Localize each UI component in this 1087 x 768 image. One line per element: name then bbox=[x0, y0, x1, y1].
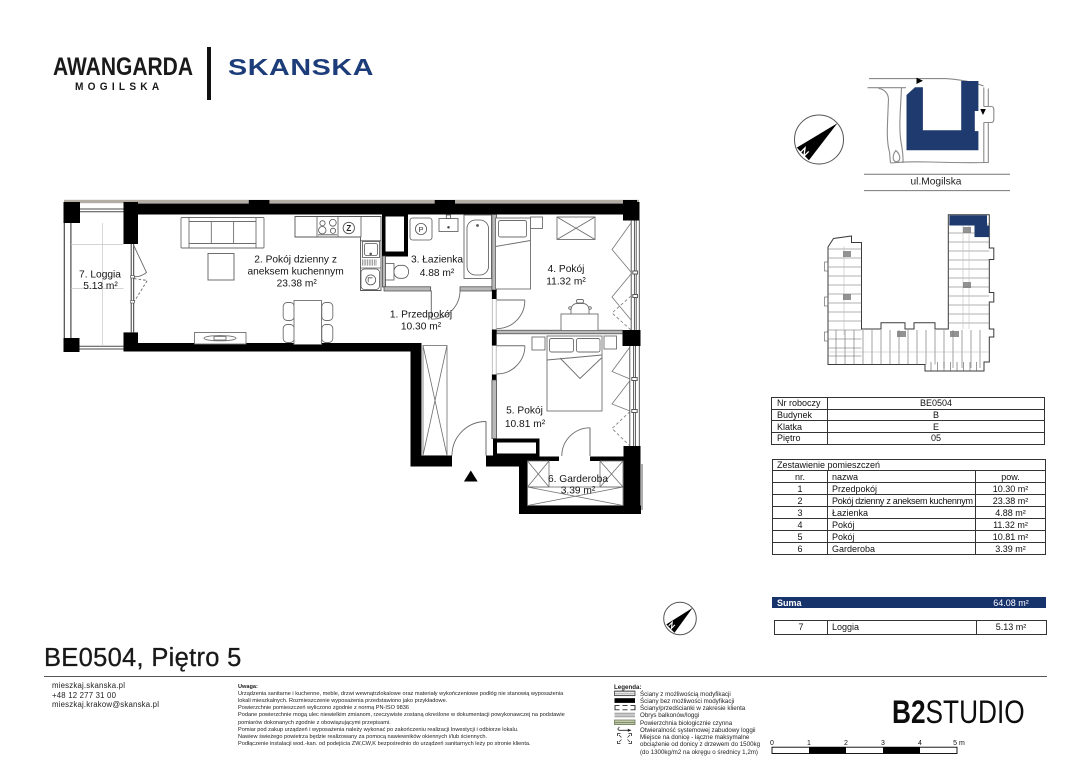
svg-text:10.30 m²: 10.30 m² bbox=[401, 322, 442, 333]
svg-text:1. Przedpokój: 1. Przedpokój bbox=[390, 310, 452, 321]
svg-text:23.38 m²: 23.38 m² bbox=[277, 279, 318, 290]
svg-text:5. Pokój: 5. Pokój bbox=[506, 406, 543, 417]
svg-text:4.88 m²: 4.88 m² bbox=[420, 268, 455, 279]
svg-text:Z: Z bbox=[346, 224, 351, 233]
svg-text:3.39 m²: 3.39 m² bbox=[561, 486, 596, 497]
svg-text:4. Pokój: 4. Pokój bbox=[548, 264, 585, 275]
svg-text:3. Łazienka: 3. Łazienka bbox=[411, 255, 463, 266]
svg-text:aneksem kuchennym: aneksem kuchennym bbox=[247, 267, 343, 278]
svg-text:6. Garderoba: 6. Garderoba bbox=[548, 474, 608, 485]
svg-text:10.81 m²: 10.81 m² bbox=[505, 419, 546, 430]
svg-text:7. Loggia: 7. Loggia bbox=[79, 270, 121, 281]
svg-text:2: 2 bbox=[844, 740, 848, 747]
svg-text:5.13 m²: 5.13 m² bbox=[83, 281, 118, 292]
svg-text:P: P bbox=[418, 225, 423, 234]
svg-text:ul.Mogilska: ul.Mogilska bbox=[911, 177, 962, 188]
svg-text:11.32 m²: 11.32 m² bbox=[546, 277, 586, 288]
svg-text:4: 4 bbox=[918, 740, 922, 747]
svg-text:5 m: 5 m bbox=[953, 740, 965, 747]
svg-text:3: 3 bbox=[881, 740, 885, 747]
svg-text:2. Pokój dzienny z: 2. Pokój dzienny z bbox=[254, 255, 337, 266]
